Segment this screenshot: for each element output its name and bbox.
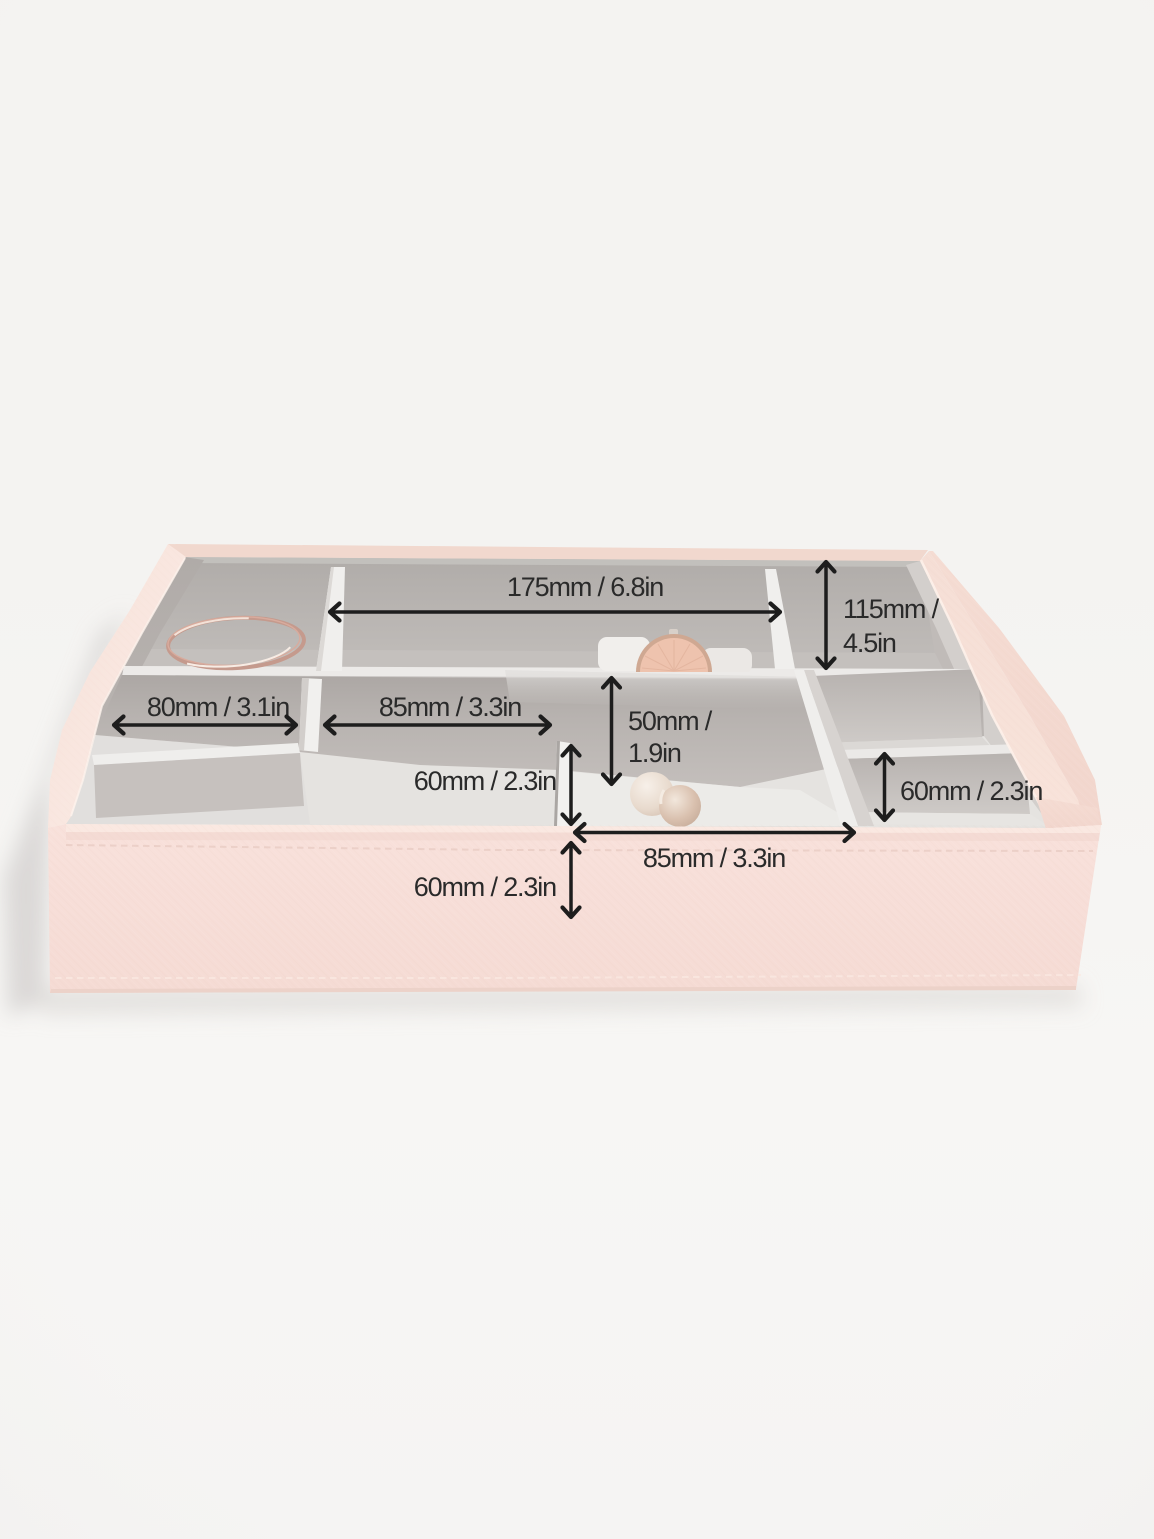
svg-text:115mm /: 115mm /: [843, 594, 940, 624]
svg-text:80mm / 3.1in: 80mm / 3.1in: [147, 692, 289, 722]
svg-text:175mm / 6.8in: 175mm / 6.8in: [507, 572, 663, 602]
svg-text:60mm / 2.3in: 60mm / 2.3in: [414, 766, 556, 796]
svg-text:50mm /: 50mm /: [628, 706, 713, 736]
svg-text:60mm / 2.3in: 60mm / 2.3in: [900, 776, 1042, 806]
svg-text:85mm / 3.3in: 85mm / 3.3in: [643, 843, 785, 873]
svg-text:85mm / 3.3in: 85mm / 3.3in: [379, 692, 521, 722]
svg-text:60mm / 2.3in: 60mm / 2.3in: [414, 872, 556, 902]
svg-text:1.9in: 1.9in: [628, 738, 681, 768]
svg-text:4.5in: 4.5in: [843, 628, 896, 658]
